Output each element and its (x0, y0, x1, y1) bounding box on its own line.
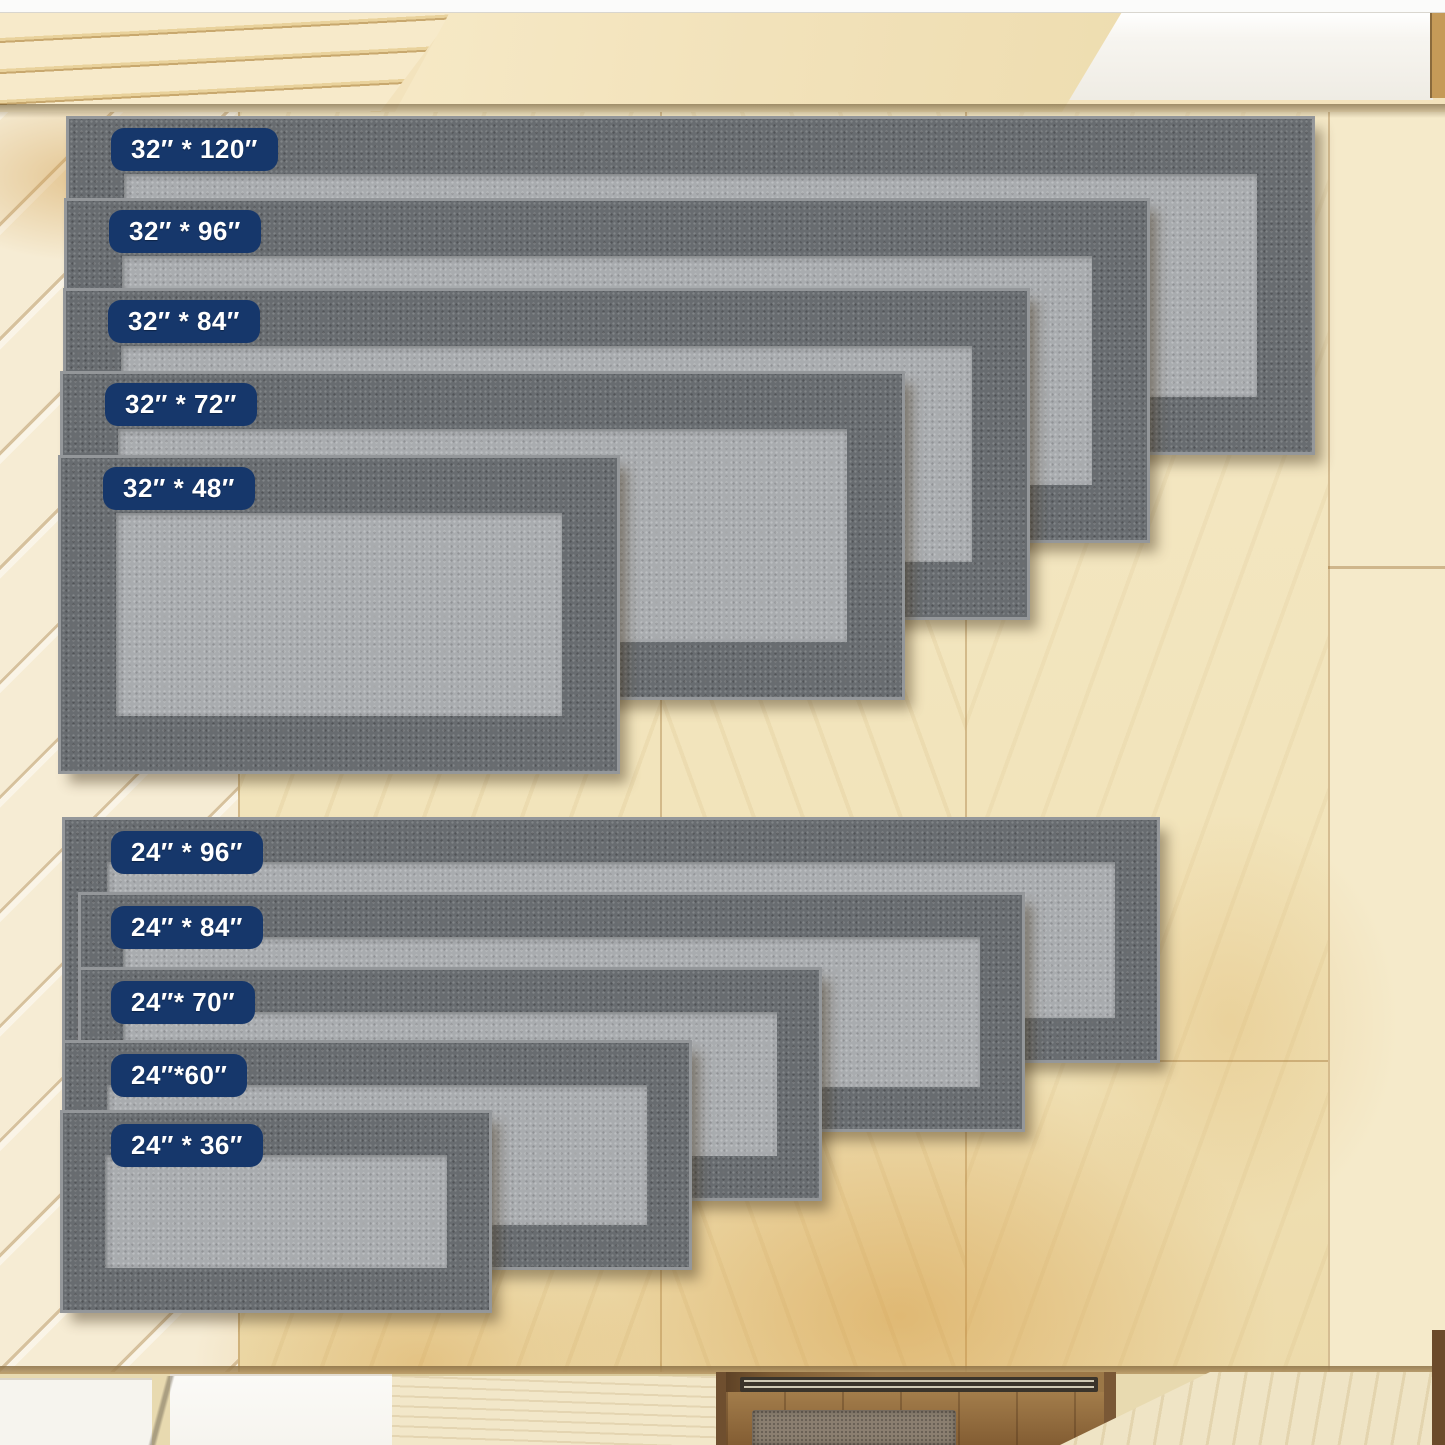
size-badge: 32″ * 96″ (109, 210, 261, 253)
entry-mat (752, 1410, 956, 1445)
floor-seam (1328, 112, 1330, 1372)
cabinet-panel (395, 12, 1122, 112)
countertop-white-strip (0, 0, 1445, 13)
size-badge: 32″ * 120″ (111, 128, 278, 171)
cabinet-slats (0, 12, 455, 112)
white-step-panel (0, 1378, 152, 1445)
rug-center-pile (116, 513, 562, 716)
size-badge: 24″ * 84″ (111, 906, 263, 949)
panel-gap-line (146, 1376, 176, 1445)
size-badge: 24″ * 96″ (111, 831, 263, 874)
floor-plank-joint (1328, 566, 1445, 569)
pale-wood-step (392, 1374, 716, 1445)
white-appliance-front (1062, 12, 1433, 100)
size-badge: 24″*60″ (111, 1054, 247, 1097)
track-rail (744, 1380, 1094, 1382)
recessed-entryway (716, 1372, 1116, 1445)
rug-24x36: 24″ * 36″ (60, 1110, 492, 1313)
cabinet-edge-right (1430, 12, 1445, 98)
size-badge: 32″ * 48″ (103, 467, 255, 510)
size-badge: 32″ * 72″ (105, 383, 257, 426)
rug-32x48: 32″ * 48″ (58, 455, 620, 774)
size-badge: 24″ * 36″ (111, 1124, 263, 1167)
sliding-door-track (740, 1377, 1098, 1392)
rug-center-pile (105, 1155, 447, 1268)
white-step-panel (170, 1374, 392, 1445)
wood-cabinets (0, 12, 1445, 112)
size-badge: 32″ * 84″ (108, 300, 260, 343)
track-rail (744, 1386, 1094, 1388)
product-photo-scene: 32″ * 120″ 32″ * 96″ 32″ * 84″ 32″ * 72″… (0, 0, 1445, 1445)
floor-plank-column (1328, 112, 1445, 1372)
door-frame-edge (1432, 1330, 1445, 1445)
size-badge: 24″* 70″ (111, 981, 255, 1024)
